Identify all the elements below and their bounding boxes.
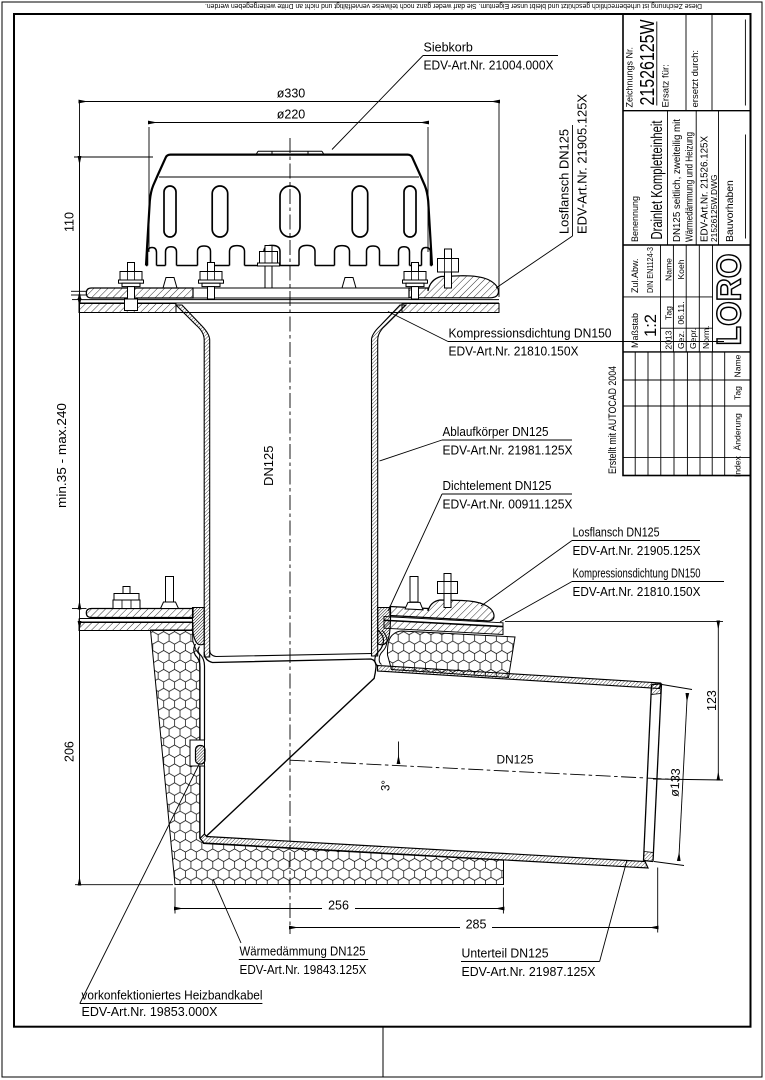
svg-text:EDV-Art.Nr. 21810.150X: EDV-Art.Nr. 21810.150X: [449, 345, 580, 359]
svg-text:Norm.: Norm.: [701, 326, 711, 349]
svg-text:Benennung: Benennung: [630, 196, 640, 242]
svg-text:Wärmedämmung und Heizung: Wärmedämmung und Heizung: [685, 132, 696, 242]
svg-text:Dichtelement DN125: Dichtelement DN125: [443, 479, 552, 493]
svg-text:123: 123: [705, 690, 719, 711]
svg-text:min.35 - max.240: min.35 - max.240: [55, 403, 69, 508]
svg-text:Zul.Abw.: Zul.Abw.: [630, 258, 640, 293]
svg-text:ø133: ø133: [668, 768, 683, 797]
svg-text:ersetzt durch:: ersetzt durch:: [690, 50, 701, 108]
svg-text:EDV-Art.Nr. 21981.125X: EDV-Art.Nr. 21981.125X: [443, 444, 574, 458]
svg-text:EDV-Art.Nr. 21004.000X: EDV-Art.Nr. 21004.000X: [424, 59, 555, 73]
svg-text:EDV-Art.Nr. 21905.125X: EDV-Art.Nr. 21905.125X: [573, 544, 702, 558]
svg-text:Tag: Tag: [733, 386, 743, 400]
svg-text:EDV-Art.Nr. 00911.125X: EDV-Art.Nr. 00911.125X: [443, 498, 574, 512]
svg-text:EDV-Art.Nr. 19853.000X: EDV-Art.Nr. 19853.000X: [82, 1005, 219, 1019]
svg-text:Maßstab: Maßstab: [630, 313, 640, 348]
svg-text:EDV-Art.Nr. 21987.125X: EDV-Art.Nr. 21987.125X: [462, 965, 597, 979]
svg-text:vorkonfektioniertes Heizbandk: vorkonfektioniertes Heizbandkabel: [82, 989, 263, 1003]
svg-text:21526125W: 21526125W: [637, 19, 659, 105]
svg-text:Wärmedämmung DN125: Wärmedämmung DN125: [240, 945, 366, 959]
svg-text:06.11.: 06.11.: [676, 301, 686, 324]
svg-text:DIN EN1124-3: DIN EN1124-3: [645, 247, 655, 293]
svg-text:Gepr.: Gepr.: [688, 328, 698, 349]
svg-text:Unterteil DN125: Unterteil DN125: [462, 947, 549, 961]
svg-text:Tag: Tag: [664, 306, 674, 320]
svg-text:256: 256: [328, 899, 349, 913]
svg-text:3°: 3°: [381, 780, 393, 791]
svg-text:EDV-Art.Nr. 19843.125X: EDV-Art.Nr. 19843.125X: [240, 963, 368, 977]
svg-text:Ersatz für:: Ersatz für:: [661, 64, 672, 107]
svg-text:2013: 2013: [664, 330, 674, 349]
svg-text:Gez.: Gez.: [676, 331, 686, 349]
svg-text:DN125: DN125: [261, 446, 276, 486]
svg-text:Koeh: Koeh: [676, 259, 686, 279]
svg-text:Drainlet Kompletteinheit: Drainlet Kompletteinheit: [649, 120, 666, 239]
svg-text:DN125 seitlich, zweiteilig mit: DN125 seitlich, zweiteilig mit: [672, 119, 683, 242]
svg-text:Bauvorhaben: Bauvorhaben: [725, 180, 736, 242]
svg-text:206: 206: [63, 741, 77, 762]
svg-text:Siebkorb: Siebkorb: [424, 41, 473, 55]
svg-text:Diese Zeichnung ist urheberrec: Diese Zeichnung ist urheberrechtlich ges…: [205, 2, 702, 11]
svg-text:Erstellt mit AUTOCAD 2004: Erstellt mit AUTOCAD 2004: [607, 366, 619, 474]
svg-text:21526125W.DWG: 21526125W.DWG: [709, 175, 719, 243]
svg-text:Änderung: Änderung: [733, 413, 743, 450]
svg-text:DN125: DN125: [497, 753, 534, 767]
svg-text:Name: Name: [664, 258, 674, 281]
svg-text:Name: Name: [733, 354, 743, 377]
svg-text:110: 110: [63, 212, 77, 232]
svg-text:Index: Index: [733, 455, 743, 477]
svg-text:1:2: 1:2: [642, 314, 660, 337]
svg-text:Kompressionsdichtung DN150: Kompressionsdichtung DN150: [449, 327, 612, 341]
svg-text:ø220: ø220: [277, 108, 306, 122]
svg-text:Ablaufkörper DN125: Ablaufkörper DN125: [443, 425, 549, 439]
svg-text:Losflansch DN125: Losflansch DN125: [558, 129, 572, 234]
svg-text:Losflansch DN125: Losflansch DN125: [573, 526, 660, 540]
svg-text:285: 285: [466, 918, 487, 932]
svg-text:ø330: ø330: [277, 87, 306, 101]
svg-text:Kompressionsdichtung DN150: Kompressionsdichtung DN150: [573, 567, 701, 581]
svg-text:LORO: LORO: [711, 254, 749, 346]
svg-text:Zeichnungs Nr.: Zeichnungs Nr.: [625, 47, 635, 108]
svg-text:EDV-Art.Nr. 21810.150X: EDV-Art.Nr. 21810.150X: [573, 585, 702, 599]
svg-text:EDV-Art.Nr. 21905.125X: EDV-Art.Nr. 21905.125X: [576, 93, 590, 234]
